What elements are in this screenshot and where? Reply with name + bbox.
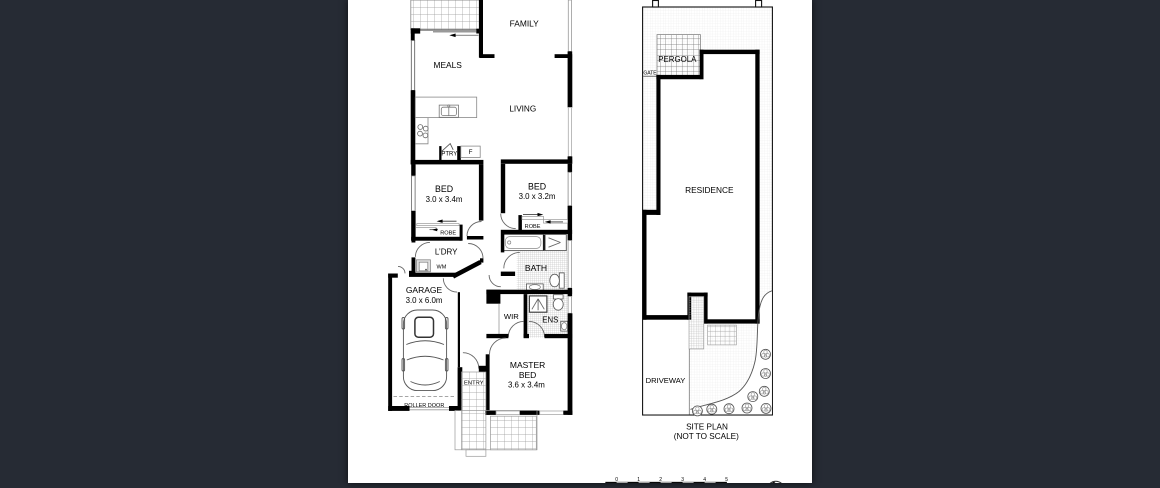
- svg-text:DRIVEWAY: DRIVEWAY: [646, 376, 686, 385]
- svg-text:BED: BED: [435, 184, 453, 194]
- svg-text:ROBE: ROBE: [440, 231, 456, 237]
- svg-text:3.0 x 3.4m: 3.0 x 3.4m: [426, 195, 463, 204]
- svg-text:MASTER: MASTER: [510, 360, 545, 370]
- svg-text:3.6 x 3.4m: 3.6 x 3.4m: [508, 381, 545, 390]
- svg-text:SITE PLAN: SITE PLAN: [686, 422, 728, 431]
- svg-text:BED: BED: [528, 182, 546, 192]
- svg-text:GARAGE: GARAGE: [406, 285, 443, 295]
- svg-text:F: F: [469, 149, 473, 156]
- svg-text:LIVING: LIVING: [509, 105, 536, 114]
- svg-text:ROBE: ROBE: [525, 224, 541, 230]
- svg-text:RESIDENCE: RESIDENCE: [685, 185, 734, 195]
- svg-text:ROLLER DOOR: ROLLER DOOR: [404, 403, 444, 409]
- svg-text:PERGOLA: PERGOLA: [658, 55, 697, 64]
- svg-text:GATE: GATE: [643, 71, 657, 77]
- svg-text:WM: WM: [437, 264, 447, 270]
- svg-text:(NOT TO SCALE): (NOT TO SCALE): [674, 432, 739, 441]
- svg-text:ENS: ENS: [542, 316, 558, 325]
- svg-text:PTRY: PTRY: [441, 152, 457, 158]
- svg-text:FAMILY: FAMILY: [510, 19, 540, 29]
- svg-text:BED: BED: [519, 370, 536, 380]
- svg-text:3.0 x 6.0m: 3.0 x 6.0m: [406, 296, 443, 305]
- svg-text:3.0 x 3.2m: 3.0 x 3.2m: [519, 192, 556, 201]
- svg-text:WIR: WIR: [504, 312, 519, 321]
- svg-text:L’DRY: L’DRY: [435, 247, 458, 256]
- svg-text:BATH: BATH: [525, 263, 547, 273]
- svg-text:MEALS: MEALS: [433, 60, 462, 70]
